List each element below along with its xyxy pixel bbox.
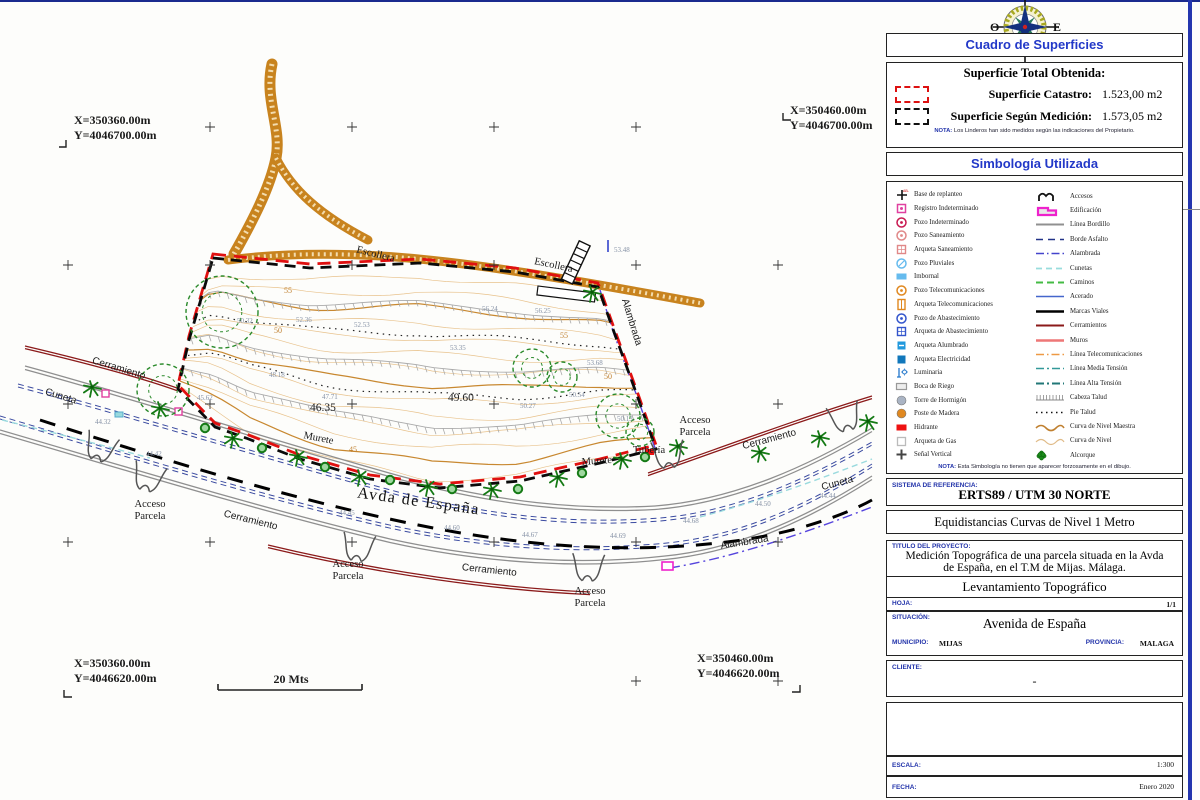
tree-canopy-icon — [547, 362, 577, 392]
alcorque-icon — [514, 485, 522, 493]
surfaces-box: Superficie Total Obtenida: Superficie Ca… — [886, 62, 1183, 148]
symbology-header: Simbología Utilizada — [887, 153, 1182, 171]
access-opening-icon — [826, 401, 864, 435]
surface-row-medicion: Superficie Según Medición: 1.573,05 m2 — [887, 108, 1182, 125]
coordinate-label: X=350360.00m — [74, 113, 151, 127]
marcas-viales-icon — [1035, 305, 1065, 318]
catastro-value: 1.523,00 m2 — [1102, 87, 1182, 102]
client-label: CLIENTE: — [892, 664, 922, 671]
scale-value: 1:300 — [1157, 760, 1174, 769]
map-label: Parcela — [333, 571, 364, 582]
municipality-label: MUNICIPIO: — [892, 639, 928, 646]
legend-item-label: Curva de Nivel — [1070, 437, 1112, 444]
legend-item-label: Accesos — [1070, 193, 1093, 200]
province-label: PROVINCIA: — [1086, 639, 1124, 646]
map-label: Acceso — [575, 586, 606, 597]
muros-icon — [1035, 334, 1065, 347]
legend-item-label: Marcas Viales — [1070, 308, 1109, 315]
legend-item: Arqueta Saneamiento — [895, 243, 993, 257]
road-linework — [0, 346, 872, 595]
legend-item-label: Arqueta Saneamiento — [914, 246, 973, 253]
legend-item-label: Alambrada — [1070, 250, 1100, 257]
legend-item-label: Pozo Telecomunicaciones — [914, 287, 985, 294]
legend-item: Pozo Indeterminado — [895, 215, 993, 229]
arqueta-gas-icon — [895, 435, 909, 448]
map-label: 52.36 — [296, 316, 312, 324]
legend-item-label: Pozo Pluviales — [914, 260, 954, 267]
curva-nivel-maestra-icon — [1035, 420, 1065, 433]
legend-item-label: Muros — [1070, 337, 1088, 344]
date-value: Enero 2020 — [1139, 782, 1174, 791]
legend-item-label: Arqueta Telecomunicaciones — [914, 301, 993, 308]
legend-item-label: Arqueta de Abastecimiento — [914, 328, 988, 335]
wall-rectangle — [537, 286, 596, 302]
imbornal-symbol — [115, 412, 123, 417]
grid-cross — [631, 537, 641, 547]
legend-item: AB-101Base de replanteo — [895, 188, 993, 202]
legend-item: Hidrante — [895, 421, 993, 435]
legend-item-label: Arqueta Alumbrado — [914, 342, 968, 349]
legend-item: Boca de Riego — [895, 380, 993, 394]
legend-item: Pozo Telecomunicaciones — [895, 284, 993, 298]
legend-item: Arqueta de Gas — [895, 434, 993, 448]
reference-label: SISTEMA DE REFERENCIA: — [892, 482, 978, 489]
equidistance-text: Equidistancias Curvas de Nivel 1 Metro — [887, 515, 1182, 530]
map-label: 44.69 — [610, 532, 626, 540]
legend-item: Muros — [1035, 333, 1142, 347]
project-title-line2: de España, en el T.M de Mijas. Málaga. — [887, 562, 1182, 574]
legend-item: Cabeza Talud — [1035, 390, 1142, 404]
legend-item-label: Cabeza Talud — [1070, 394, 1107, 401]
legend-item: Poste de Madera — [895, 407, 993, 421]
map-label: Parcela — [575, 598, 606, 609]
map-label: 50.54 — [569, 391, 585, 399]
legend-item: Arqueta Alumbrado — [895, 339, 993, 353]
legend-item: Señal Vertical — [895, 448, 993, 462]
map-label: 44.42 — [146, 450, 162, 458]
grid-cross — [63, 260, 73, 270]
symbology-header-box: Simbología Utilizada — [886, 152, 1183, 176]
medicion-label: Superficie Según Medición: — [929, 109, 1102, 124]
legend-item: Caminos — [1035, 275, 1142, 289]
map-label: Cerramiento — [461, 562, 517, 579]
grid-cross — [347, 537, 357, 547]
grid-cross — [347, 399, 357, 409]
base-replanteo-icon: AB-101 — [895, 188, 909, 201]
map-label: 44.68 — [683, 517, 699, 525]
acerado-icon — [1035, 290, 1065, 303]
legend-item-label: Pozo de Abastecimiento — [914, 315, 980, 322]
project-box: TITULO DEL PROYECTO: Medición Topográfic… — [886, 540, 1183, 656]
pozo-indeterminado-icon — [895, 216, 909, 229]
corner-ticks — [59, 113, 800, 697]
imbornal-icon — [895, 270, 909, 283]
frame-stub-line — [1183, 209, 1200, 210]
access-opening-icon — [571, 553, 604, 582]
legend-item: Edificación — [1035, 203, 1142, 217]
grid-cross — [205, 260, 215, 270]
map-label: Acceso — [680, 415, 711, 426]
map-label: 55 — [284, 286, 292, 295]
access-opening-icon — [81, 430, 120, 466]
registro-symbol — [102, 390, 109, 397]
legend-item-label: Poste de Madera — [914, 410, 959, 417]
borde-asfalto-icon — [1035, 233, 1065, 246]
grid-cross — [773, 537, 783, 547]
project-title-label: TITULO DEL PROYECTO: — [892, 543, 971, 550]
legend-item: Arqueta Electricidad — [895, 352, 993, 366]
grid-cross — [773, 260, 783, 270]
medicion-boundary-icon — [895, 108, 929, 125]
legend-item-label: Cerramientos — [1070, 322, 1107, 329]
map-label: Acceso — [135, 499, 166, 510]
arqueta-abastecimiento-icon — [895, 325, 909, 338]
cabeza-talud-icon — [1035, 391, 1065, 404]
sheet-value: 1/1 — [1166, 600, 1176, 609]
alcorque-icon — [1035, 449, 1065, 462]
legend-column-right: AccesosEdificaciónLínea BordilloBorde As… — [1035, 189, 1142, 462]
luminaria-icon — [895, 366, 909, 379]
alcorque-icon — [448, 485, 456, 493]
map-label: 44.50 — [755, 500, 771, 508]
project-subtitle: Levantamiento Topográfico — [887, 577, 1182, 597]
caminos-icon — [1035, 276, 1065, 289]
grid-cross — [489, 399, 499, 409]
map-label: 45.62 — [197, 394, 213, 402]
legend-item: Accesos — [1035, 189, 1142, 203]
map-label: 50 — [274, 326, 282, 335]
coordinate-label: Y=4046620.00m — [74, 671, 157, 685]
palm-tree-icon — [550, 471, 567, 487]
legend-column-left: AB-101Base de replanteoRegistro Indeterm… — [895, 188, 993, 462]
surfaces-header: Cuadro de Superficies — [887, 34, 1182, 52]
legend-item: Registro Indeterminado — [895, 202, 993, 216]
linea-alta-tension-icon — [1035, 377, 1065, 390]
pozo-abastecimiento-icon — [895, 312, 909, 325]
map-label: Tubería — [633, 445, 666, 456]
map-label: 53.48 — [614, 246, 630, 254]
legend-item: Arqueta de Abastecimiento — [895, 325, 993, 339]
sheet-label: HOJA: — [892, 600, 912, 607]
legend-item: Torre de Hormigón — [895, 393, 993, 407]
map-label: 44.45 — [339, 509, 355, 517]
legend-item-label: Línea Bordillo — [1070, 221, 1110, 228]
sheet-right-border — [1188, 0, 1192, 800]
legend-item: Pozo Saneamiento — [895, 229, 993, 243]
surfaces-total-label: Superficie Total Obtenida: — [887, 66, 1182, 81]
province-value: MALAGA — [1140, 639, 1174, 648]
map-label: 44.44 — [820, 492, 836, 500]
situation-label: SITUACIÓN: — [892, 614, 930, 621]
map-label: 48.18 — [269, 371, 285, 379]
symbology-note: NOTA: Esta Simbología no tienen que apar… — [887, 464, 1182, 470]
poste-madera-icon — [895, 407, 909, 420]
grid-cross — [773, 399, 783, 409]
palm-tree-icon — [860, 415, 877, 431]
legend-item: Pozo Pluviales — [895, 256, 993, 270]
legend-item: Curva de Nivel Maestra — [1035, 419, 1142, 433]
compass-west-label: O — [990, 20, 999, 34]
map-label: Avda de España — [356, 485, 481, 519]
project-title-line1: Medición Topográfica de una parcela situ… — [887, 550, 1182, 562]
legend-item-label: Luminaria — [914, 369, 942, 376]
pozo-telecomunicaciones-icon — [895, 284, 909, 297]
survey-sheet: { "compass": {"west":"O","east":"E","sou… — [0, 0, 1200, 800]
linea-media-tension-icon — [1035, 362, 1065, 375]
grid-cross — [205, 537, 215, 547]
map-label: Murete — [303, 430, 335, 447]
client-value: - — [887, 674, 1182, 689]
map-label: 53.68 — [587, 359, 603, 367]
curva-nivel-icon — [1035, 434, 1065, 447]
alcorque-icon — [321, 463, 329, 471]
linea-telecomunicaciones-icon — [1035, 348, 1065, 361]
grid-cross — [205, 122, 215, 132]
scale-date-box: ESCALA: 1:300 FECHA: Enero 2020 — [886, 702, 1183, 798]
palm-tree-icon — [812, 431, 829, 447]
grid-crosses — [63, 122, 783, 686]
coordinate-label: Y=4046620.00m — [697, 666, 780, 680]
legend-item: Arqueta Telecomunicaciones — [895, 298, 993, 312]
accesos-icon — [1035, 190, 1065, 203]
legend-item-label: Señal Vertical — [914, 451, 952, 458]
legend-item: Pie Talud — [1035, 405, 1142, 419]
surfaces-note: NOTA: Los Linderos han sido medidos segú… — [887, 128, 1182, 134]
surfaces-header-box: Cuadro de Superficies — [886, 33, 1183, 57]
alcorque-icon — [386, 476, 394, 484]
legend-item-label: Edificación — [1070, 207, 1101, 214]
legend-item: Línea Bordillo — [1035, 218, 1142, 232]
municipality-value: MIJAS — [939, 639, 962, 648]
map-label: Parcela — [135, 511, 166, 522]
pozo-pluviales-icon — [895, 257, 909, 270]
scale-bar-label: 20 Mts — [274, 672, 309, 686]
map-label: Cerramiento — [91, 355, 147, 382]
legend-item-label: Torre de Hormigón — [914, 397, 966, 404]
site-plan-drawing: 20 Mts X=350360.00m Y=4046700.00m X=3504… — [0, 0, 884, 800]
coordinate-label: X=350360.00m — [74, 656, 151, 670]
map-label: Acceso — [333, 559, 364, 570]
palm-tree-icon — [670, 440, 687, 456]
alcorque-icon — [258, 444, 266, 452]
map-label: 56.25 — [535, 307, 551, 315]
legend-item-label: Pozo Saneamiento — [914, 232, 964, 239]
grid-cross — [63, 537, 73, 547]
map-label: 50.32 — [237, 317, 253, 325]
legend-item-label: Borde Asfalto — [1070, 236, 1108, 243]
grid-cross — [347, 122, 357, 132]
map-label: 44.67 — [522, 531, 538, 539]
situation-value: Avenida de España — [887, 612, 1182, 632]
legend-item: Línea Alta Tensión — [1035, 376, 1142, 390]
map-label: Parcela — [680, 427, 711, 438]
legend-item-label: Pozo Indeterminado — [914, 219, 969, 226]
pie-talud-icon — [1035, 406, 1065, 419]
legend-item: Cerramientos — [1035, 319, 1142, 333]
legend-item: Borde Asfalto — [1035, 232, 1142, 246]
scale-bar: 20 Mts — [218, 672, 362, 690]
coordinate-label: Y=4046700.00m — [74, 128, 157, 142]
pozo-saneamiento-icon — [895, 229, 909, 242]
cerramientos-icon — [1035, 319, 1065, 332]
arqueta-telecomunicaciones-icon — [895, 298, 909, 311]
legend-item-label: Curva de Nivel Maestra — [1070, 423, 1135, 430]
legend-item-label: Cunetas — [1070, 265, 1092, 272]
legend-item-label: Alcorque — [1070, 452, 1095, 459]
surface-row-catastro: Superficie Catastro: 1.523,00 m2 — [887, 86, 1182, 103]
svg-text:AB-101: AB-101 — [903, 189, 909, 193]
tree-canopy-icon — [513, 349, 551, 387]
equidistance-box: Equidistancias Curvas de Nivel 1 Metro — [886, 510, 1183, 534]
grid-cross — [631, 676, 641, 686]
legend-item-label: Caminos — [1070, 279, 1094, 286]
map-label: 50 — [604, 372, 612, 381]
legend-item: Línea Telecomunicaciones — [1035, 347, 1142, 361]
compass-east-label: E — [1053, 20, 1061, 34]
map-label: 50.27 — [520, 402, 536, 410]
map-label: 53.35 — [450, 344, 466, 352]
map-label: 47.71 — [322, 393, 338, 401]
linea-bordillo-icon — [1035, 218, 1065, 231]
map-label: 44.60 — [444, 524, 460, 532]
map-label: Cuneta — [44, 387, 78, 407]
map-label: Alambrada — [720, 533, 770, 551]
legend-item-label: Acerado — [1070, 293, 1093, 300]
hidrante-icon — [895, 421, 909, 434]
legend-item: Imbornal — [895, 270, 993, 284]
scale-label: ESCALA: — [892, 762, 921, 769]
torre-hormigon-icon — [895, 394, 909, 407]
alcorque-icon — [201, 424, 209, 432]
legend-item-label: Línea Telecomunicaciones — [1070, 351, 1142, 358]
edificacion-icon — [1035, 204, 1065, 217]
map-label: 50.13 — [617, 415, 633, 423]
map-label: Murete — [581, 455, 612, 468]
map-label: 49.60 — [448, 392, 474, 404]
registro-indeterminado-icon — [895, 202, 909, 215]
map-label: 46.35 — [310, 402, 336, 414]
escollera-band — [228, 64, 700, 303]
date-label: FECHA: — [892, 784, 917, 791]
legend-item-label: Línea Media Tensión — [1070, 365, 1128, 372]
coordinate-label: X=350460.00m — [790, 103, 867, 117]
arqueta-saneamiento-icon — [895, 243, 909, 256]
client-box: CLIENTE: - — [886, 660, 1183, 697]
legend-item: Línea Media Tensión — [1035, 362, 1142, 376]
catastro-label: Superficie Catastro: — [929, 87, 1102, 102]
catastro-boundary-icon — [895, 86, 929, 103]
legend-item-label: Registro Indeterminado — [914, 205, 978, 212]
medicion-value: 1.573,05 m2 — [1102, 109, 1182, 124]
arqueta-electricidad-icon — [895, 353, 909, 366]
map-label: 56.24 — [482, 305, 498, 313]
legend-item: Pozo de Abastecimiento — [895, 311, 993, 325]
legend-item: Alambrada — [1035, 247, 1142, 261]
reference-value: ERTS89 / UTM 30 NORTE — [887, 487, 1182, 503]
coordinate-label: X=350460.00m — [697, 651, 774, 665]
map-label: 45 — [349, 445, 357, 454]
senal-vertical-icon — [895, 448, 909, 461]
legend-item-label: Arqueta Electricidad — [914, 356, 970, 363]
cunetas-icon — [1035, 262, 1065, 275]
arqueta-alumbrado-icon — [895, 339, 909, 352]
legend-item-label: Pie Talud — [1070, 409, 1096, 416]
map-label: 55 — [560, 331, 568, 340]
map-label: Alambrada — [619, 298, 644, 348]
legend-item: Acerado — [1035, 290, 1142, 304]
boca-riego-icon — [895, 380, 909, 393]
alcorque-icon — [578, 469, 586, 477]
symbology-box: AB-101Base de replanteoRegistro Indeterm… — [886, 181, 1183, 474]
legend-item-label: Arqueta de Gas — [914, 438, 956, 445]
legend-item: Luminaria — [895, 366, 993, 380]
legend-item-label: Línea Alta Tensión — [1070, 380, 1122, 387]
legend-item: Cunetas — [1035, 261, 1142, 275]
legend-item: Curva de Nivel — [1035, 434, 1142, 448]
alambrada-end-marker — [662, 562, 673, 570]
grid-cross — [489, 122, 499, 132]
legend-item-label: Imbornal — [914, 273, 939, 280]
legend-item-label: Boca de Riego — [914, 383, 954, 390]
grid-cross — [631, 260, 641, 270]
map-label: 52.53 — [354, 321, 370, 329]
grid-cross — [631, 122, 641, 132]
legend-item: Marcas Viales — [1035, 304, 1142, 318]
map-label: 44.32 — [95, 418, 111, 426]
legend-item-label: Base de replanteo — [914, 191, 962, 198]
alambrada-icon — [1035, 247, 1065, 260]
coordinate-label: Y=4046700.00m — [790, 118, 873, 132]
legend-item-label: Hidrante — [914, 424, 938, 431]
legend-item: Alcorque — [1035, 448, 1142, 462]
reference-box: SISTEMA DE REFERENCIA: ERTS89 / UTM 30 N… — [886, 478, 1183, 506]
